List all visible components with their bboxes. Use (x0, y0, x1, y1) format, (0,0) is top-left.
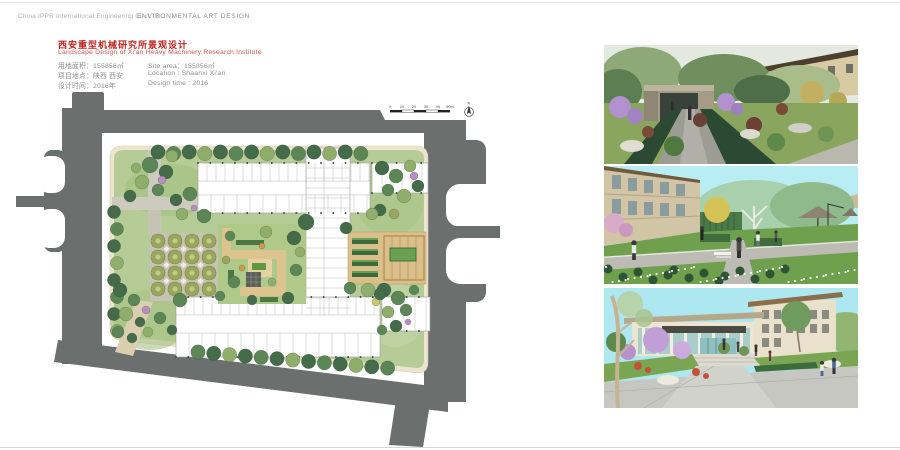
scale-tick: 10 (400, 104, 405, 109)
scale-tick: 0 (389, 104, 392, 109)
scale-tick: 30 (424, 104, 429, 109)
north-label: N (468, 101, 471, 106)
east-entry-plaza (348, 232, 426, 284)
pergola-structure (246, 272, 261, 287)
scale-tick: 50m (446, 104, 454, 109)
tree-grid-plaza (150, 233, 222, 301)
scale-tick: 40 (436, 104, 441, 109)
presentation-board: { "header": { "company": "China IPPR Int… (0, 0, 900, 450)
left-building (604, 166, 700, 246)
north-arrow-icon: N (465, 101, 474, 117)
scale-tick: 20 (412, 104, 417, 109)
rendering-thumbnail-3 (604, 288, 858, 408)
scale-bar: 0 10 20 30 40 50m (389, 104, 455, 112)
rendering-thumbnail-2 (604, 166, 858, 284)
rendering-thumbnail-1 (604, 45, 858, 164)
